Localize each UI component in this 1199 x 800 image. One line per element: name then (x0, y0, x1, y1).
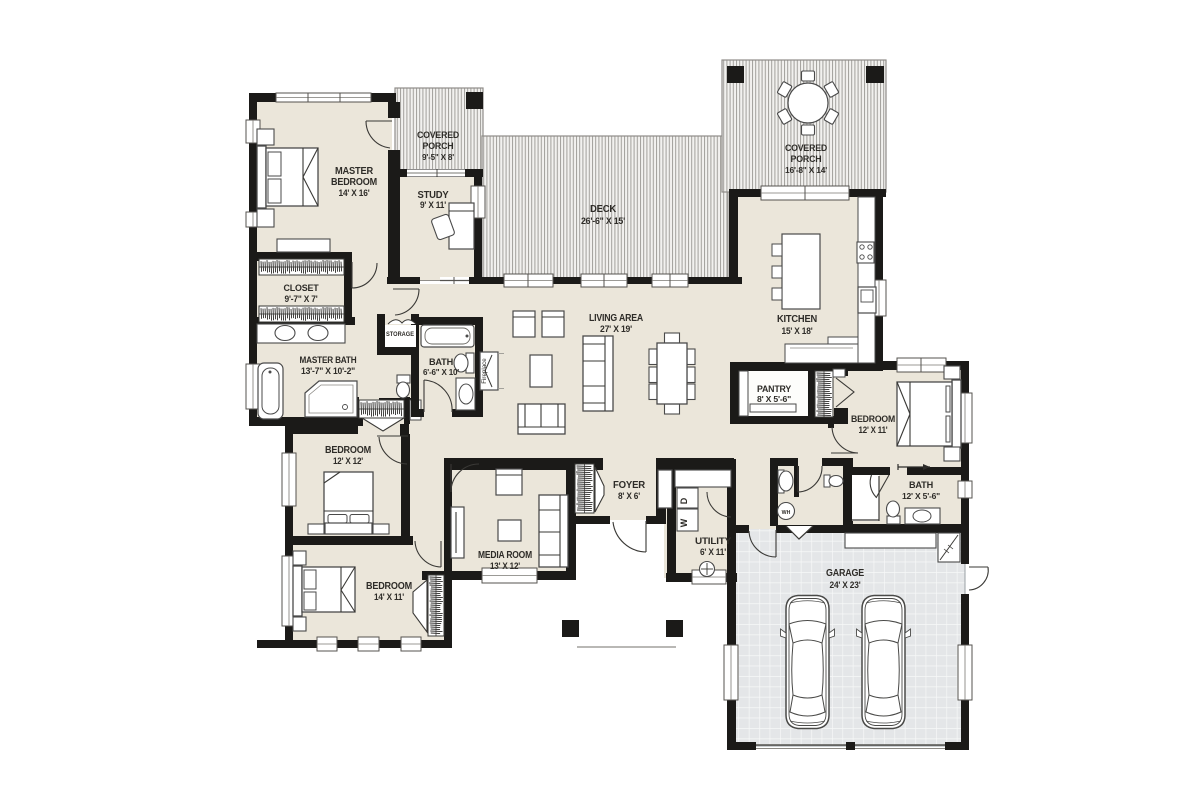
svg-text:MASTER: MASTER (335, 166, 373, 177)
svg-text:8' X 5'-6": 8' X 5'-6" (757, 395, 791, 404)
svg-text:14' X 11': 14' X 11' (374, 592, 404, 602)
svg-text:PORCH: PORCH (791, 154, 823, 164)
svg-text:12' X 11': 12' X 11' (859, 425, 888, 435)
svg-text:KITCHEN: KITCHEN (777, 314, 817, 325)
svg-text:9'-5" X 8': 9'-5" X 8' (422, 152, 454, 162)
svg-text:CLOSET: CLOSET (284, 282, 319, 293)
svg-text:LIVING AREA: LIVING AREA (589, 313, 643, 324)
svg-text:BATH: BATH (909, 480, 933, 490)
svg-text:14' X 16': 14' X 16' (339, 188, 370, 198)
svg-text:BATH: BATH (429, 357, 453, 367)
svg-text:13'-7" X 10'-2": 13'-7" X 10'-2" (301, 366, 355, 376)
svg-text:MEDIA ROOM: MEDIA ROOM (478, 550, 532, 561)
svg-text:COVERED: COVERED (417, 130, 460, 140)
svg-text:D: D (679, 497, 689, 504)
svg-text:24' X 23': 24' X 23' (830, 580, 861, 590)
svg-text:BEDROOM: BEDROOM (366, 581, 412, 592)
svg-text:DECK: DECK (590, 204, 616, 215)
svg-text:PORCH: PORCH (423, 141, 455, 151)
svg-text:BEDROOM: BEDROOM (325, 445, 371, 456)
svg-text:16'-8" X 14': 16'-8" X 14' (785, 165, 827, 175)
svg-text:GARAGE: GARAGE (826, 568, 865, 579)
svg-text:UTILITY: UTILITY (695, 535, 732, 546)
svg-text:13' X 12': 13' X 12' (490, 561, 520, 571)
svg-text:15' X 18': 15' X 18' (782, 326, 813, 336)
svg-text:FOYER: FOYER (613, 480, 645, 491)
svg-text:Fireplace: Fireplace (481, 358, 488, 384)
svg-text:12' X 5'-6": 12' X 5'-6" (902, 491, 940, 501)
svg-text:BEDROOM: BEDROOM (331, 177, 377, 188)
svg-text:26'-6" X 15': 26'-6" X 15' (581, 216, 625, 226)
svg-text:BEDROOM: BEDROOM (851, 413, 895, 424)
svg-text:6' X 11': 6' X 11' (700, 547, 726, 557)
svg-text:STORAGE: STORAGE (386, 332, 414, 338)
svg-text:12' X 12': 12' X 12' (333, 456, 363, 466)
svg-text:W: W (679, 518, 689, 527)
svg-text:WH: WH (782, 510, 791, 516)
svg-text:MASTER BATH: MASTER BATH (300, 354, 357, 365)
svg-text:9'-7" X 7': 9'-7" X 7' (285, 294, 318, 304)
svg-text:27' X 19': 27' X 19' (600, 324, 632, 334)
svg-text:PANTRY: PANTRY (757, 384, 791, 394)
svg-text:8' X 6': 8' X 6' (618, 491, 640, 501)
svg-text:6'-6" X 10': 6'-6" X 10' (423, 367, 459, 377)
svg-text:COVERED: COVERED (785, 143, 828, 153)
svg-text:9' X 11': 9' X 11' (420, 200, 446, 210)
